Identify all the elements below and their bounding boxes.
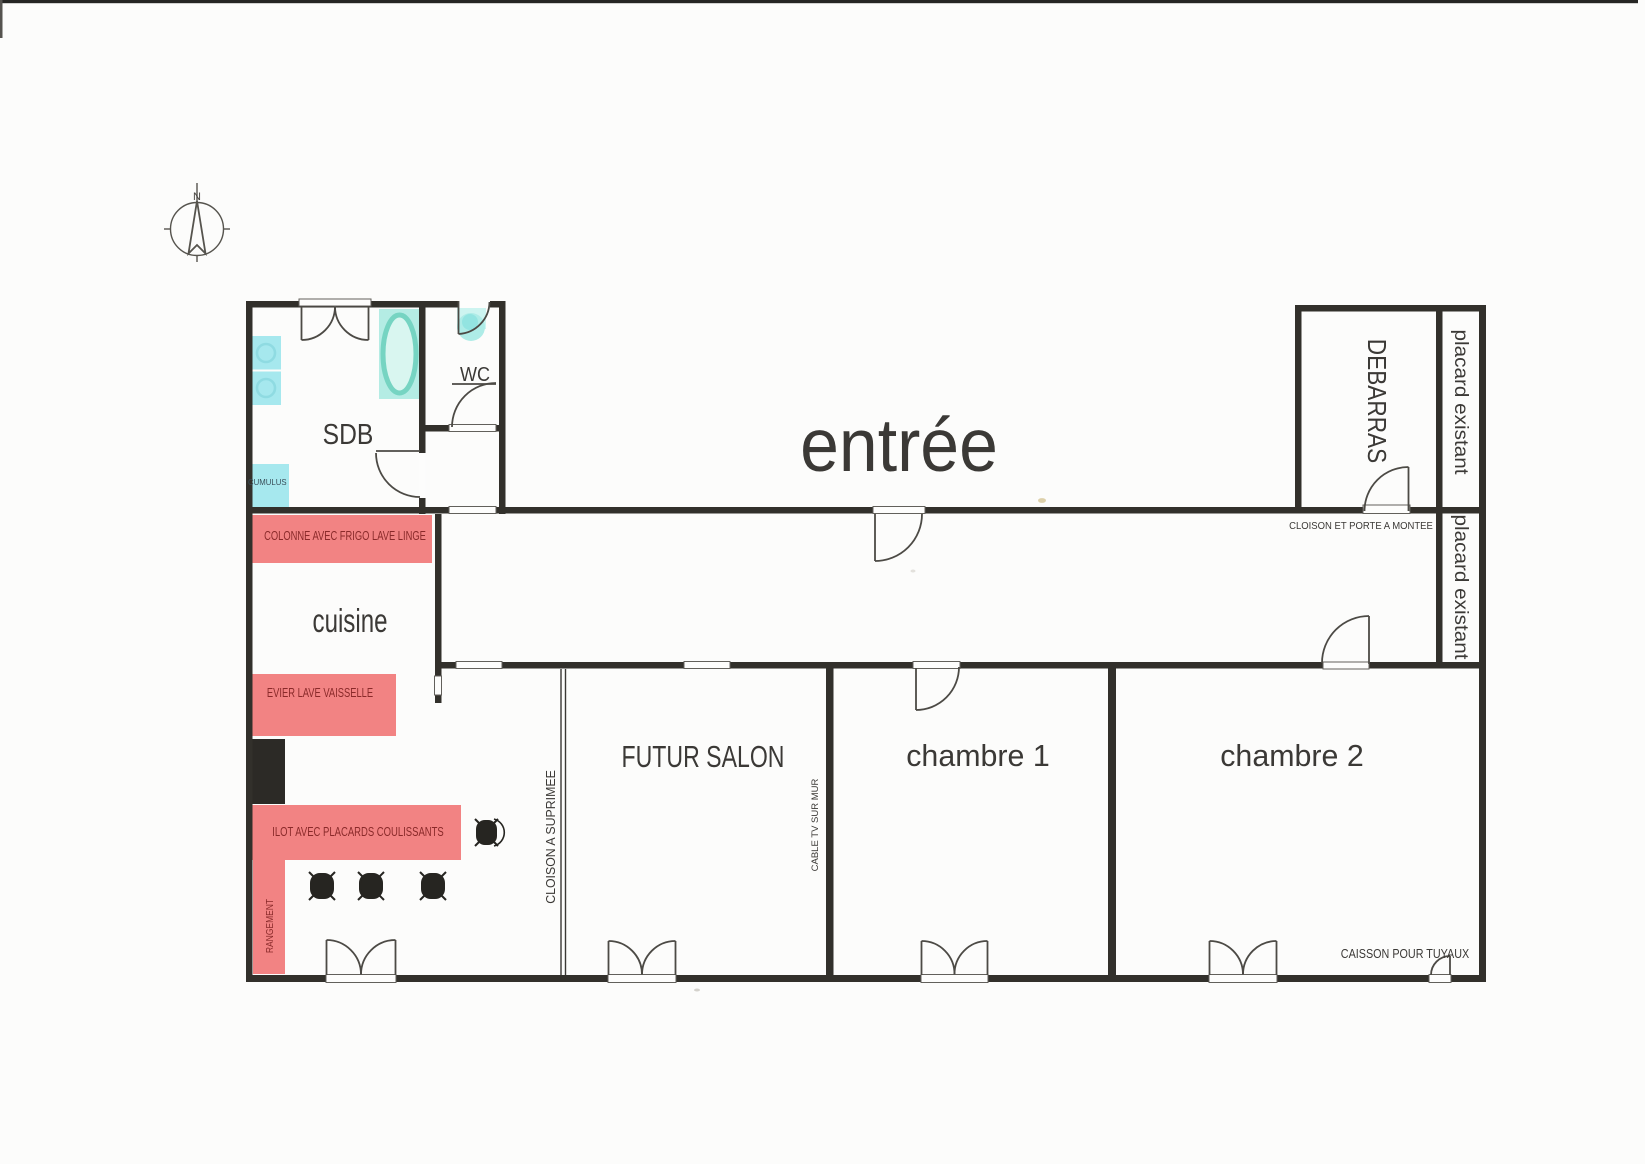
svg-text:DEBARRAS: DEBARRAS <box>1362 339 1391 463</box>
svg-text:chambre 1: chambre 1 <box>906 738 1050 773</box>
svg-text:COLONNE AVEC FRIGO LAVE LINGE: COLONNE AVEC FRIGO LAVE LINGE <box>264 530 426 544</box>
svg-text:RANGEMENT: RANGEMENT <box>264 899 275 954</box>
svg-text:FUTUR SALON: FUTUR SALON <box>622 739 785 774</box>
svg-text:CLOISON ET PORTE A MONTEE: CLOISON ET PORTE A MONTEE <box>1289 521 1433 532</box>
svg-text:WC: WC <box>460 364 490 386</box>
svg-text:CUMULUS: CUMULUS <box>248 478 287 487</box>
svg-text:ILOT AVEC PLACARDS COULISSANTS: ILOT AVEC PLACARDS COULISSANTS <box>272 826 444 840</box>
svg-text:EVIER LAVE VAISSELLE: EVIER LAVE VAISSELLE <box>267 687 374 701</box>
svg-text:placard existant: placard existant <box>1450 330 1471 475</box>
svg-text:SDB: SDB <box>323 418 374 450</box>
svg-text:N: N <box>193 191 201 203</box>
svg-text:CAISSON POUR TUYAUX: CAISSON POUR TUYAUX <box>1341 946 1469 961</box>
svg-text:chambre 2: chambre 2 <box>1220 738 1364 773</box>
svg-text:CLOISON A SUPRIMEE: CLOISON A SUPRIMEE <box>544 770 558 904</box>
svg-text:placard existant: placard existant <box>1450 515 1471 660</box>
svg-text:cuisine: cuisine <box>313 603 388 640</box>
svg-text:CABLE TV SUR MUR: CABLE TV SUR MUR <box>810 778 821 871</box>
svg-text:entrée: entrée <box>800 404 998 488</box>
